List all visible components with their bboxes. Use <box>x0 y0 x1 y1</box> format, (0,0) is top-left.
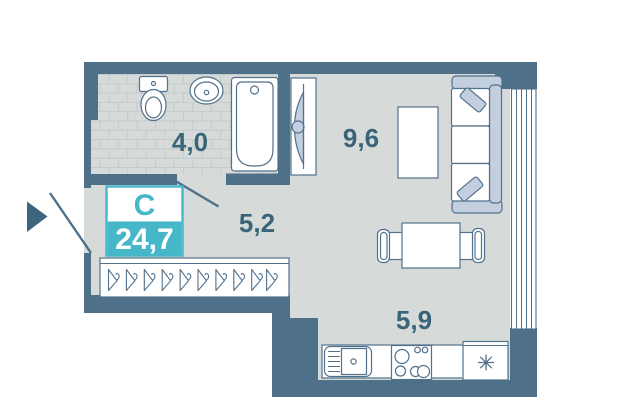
wall-segment <box>272 380 537 397</box>
desk <box>398 107 438 178</box>
area-label-kitchen: 5,9 <box>396 305 432 335</box>
area-label-living-room: 9,6 <box>343 123 379 153</box>
chair <box>459 229 485 263</box>
wall-segment <box>510 328 537 397</box>
snowflake-icon <box>478 355 494 371</box>
kitchen-counter <box>322 342 508 381</box>
bathtub <box>232 78 279 172</box>
chair <box>378 230 404 263</box>
apartment-type-badge: С 24,7 <box>107 187 183 257</box>
area-label-bathroom: 4,0 <box>172 127 208 157</box>
closet <box>100 258 289 297</box>
window-glazing <box>512 89 537 329</box>
kitchen-sink <box>325 347 372 377</box>
floor-plan-page: С 24,7 4,0 5,2 9,6 5,9 <box>0 0 640 400</box>
wall-segment <box>278 62 290 185</box>
sofa <box>452 76 503 213</box>
sofa-cushion <box>452 126 490 164</box>
wall-segment <box>90 174 178 185</box>
washbasin <box>190 77 223 104</box>
wall-segment <box>226 174 290 186</box>
sliding-wardrobe <box>291 78 316 175</box>
area-label-hallway: 5,2 <box>239 208 275 238</box>
apartment-type-label: С <box>134 189 156 222</box>
toilet <box>140 77 168 121</box>
total-area-label: 24,7 <box>115 223 173 256</box>
stove <box>392 346 432 380</box>
wall-segment <box>84 295 290 313</box>
dining-table <box>402 223 460 268</box>
wall-segment <box>84 62 537 74</box>
fridge <box>463 342 508 381</box>
sofa-back <box>490 85 502 203</box>
floor-plan-svg: С 24,7 4,0 5,2 9,6 5,9 <box>0 0 640 400</box>
